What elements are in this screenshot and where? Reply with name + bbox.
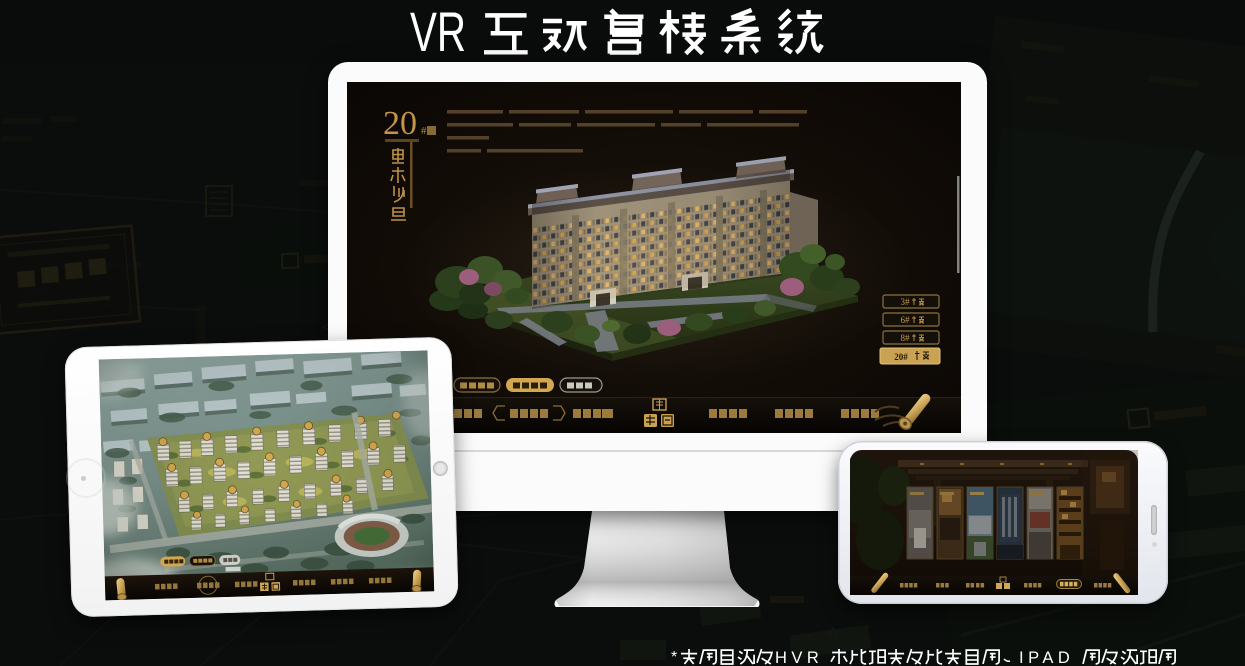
svg-text:HVR: HVR — [775, 649, 823, 666]
svg-text:3#: 3# — [901, 297, 911, 307]
svg-text:20: 20 — [383, 105, 417, 142]
svg-text:#: # — [421, 125, 427, 137]
svg-text:20#: 20# — [894, 352, 908, 362]
svg-text:IPAD: IPAD — [1019, 649, 1074, 666]
svg-text:*: * — [671, 649, 677, 666]
svg-text:VR: VR — [410, 0, 466, 63]
svg-text:6#: 6# — [901, 315, 911, 325]
svg-text:8#: 8# — [901, 333, 911, 343]
